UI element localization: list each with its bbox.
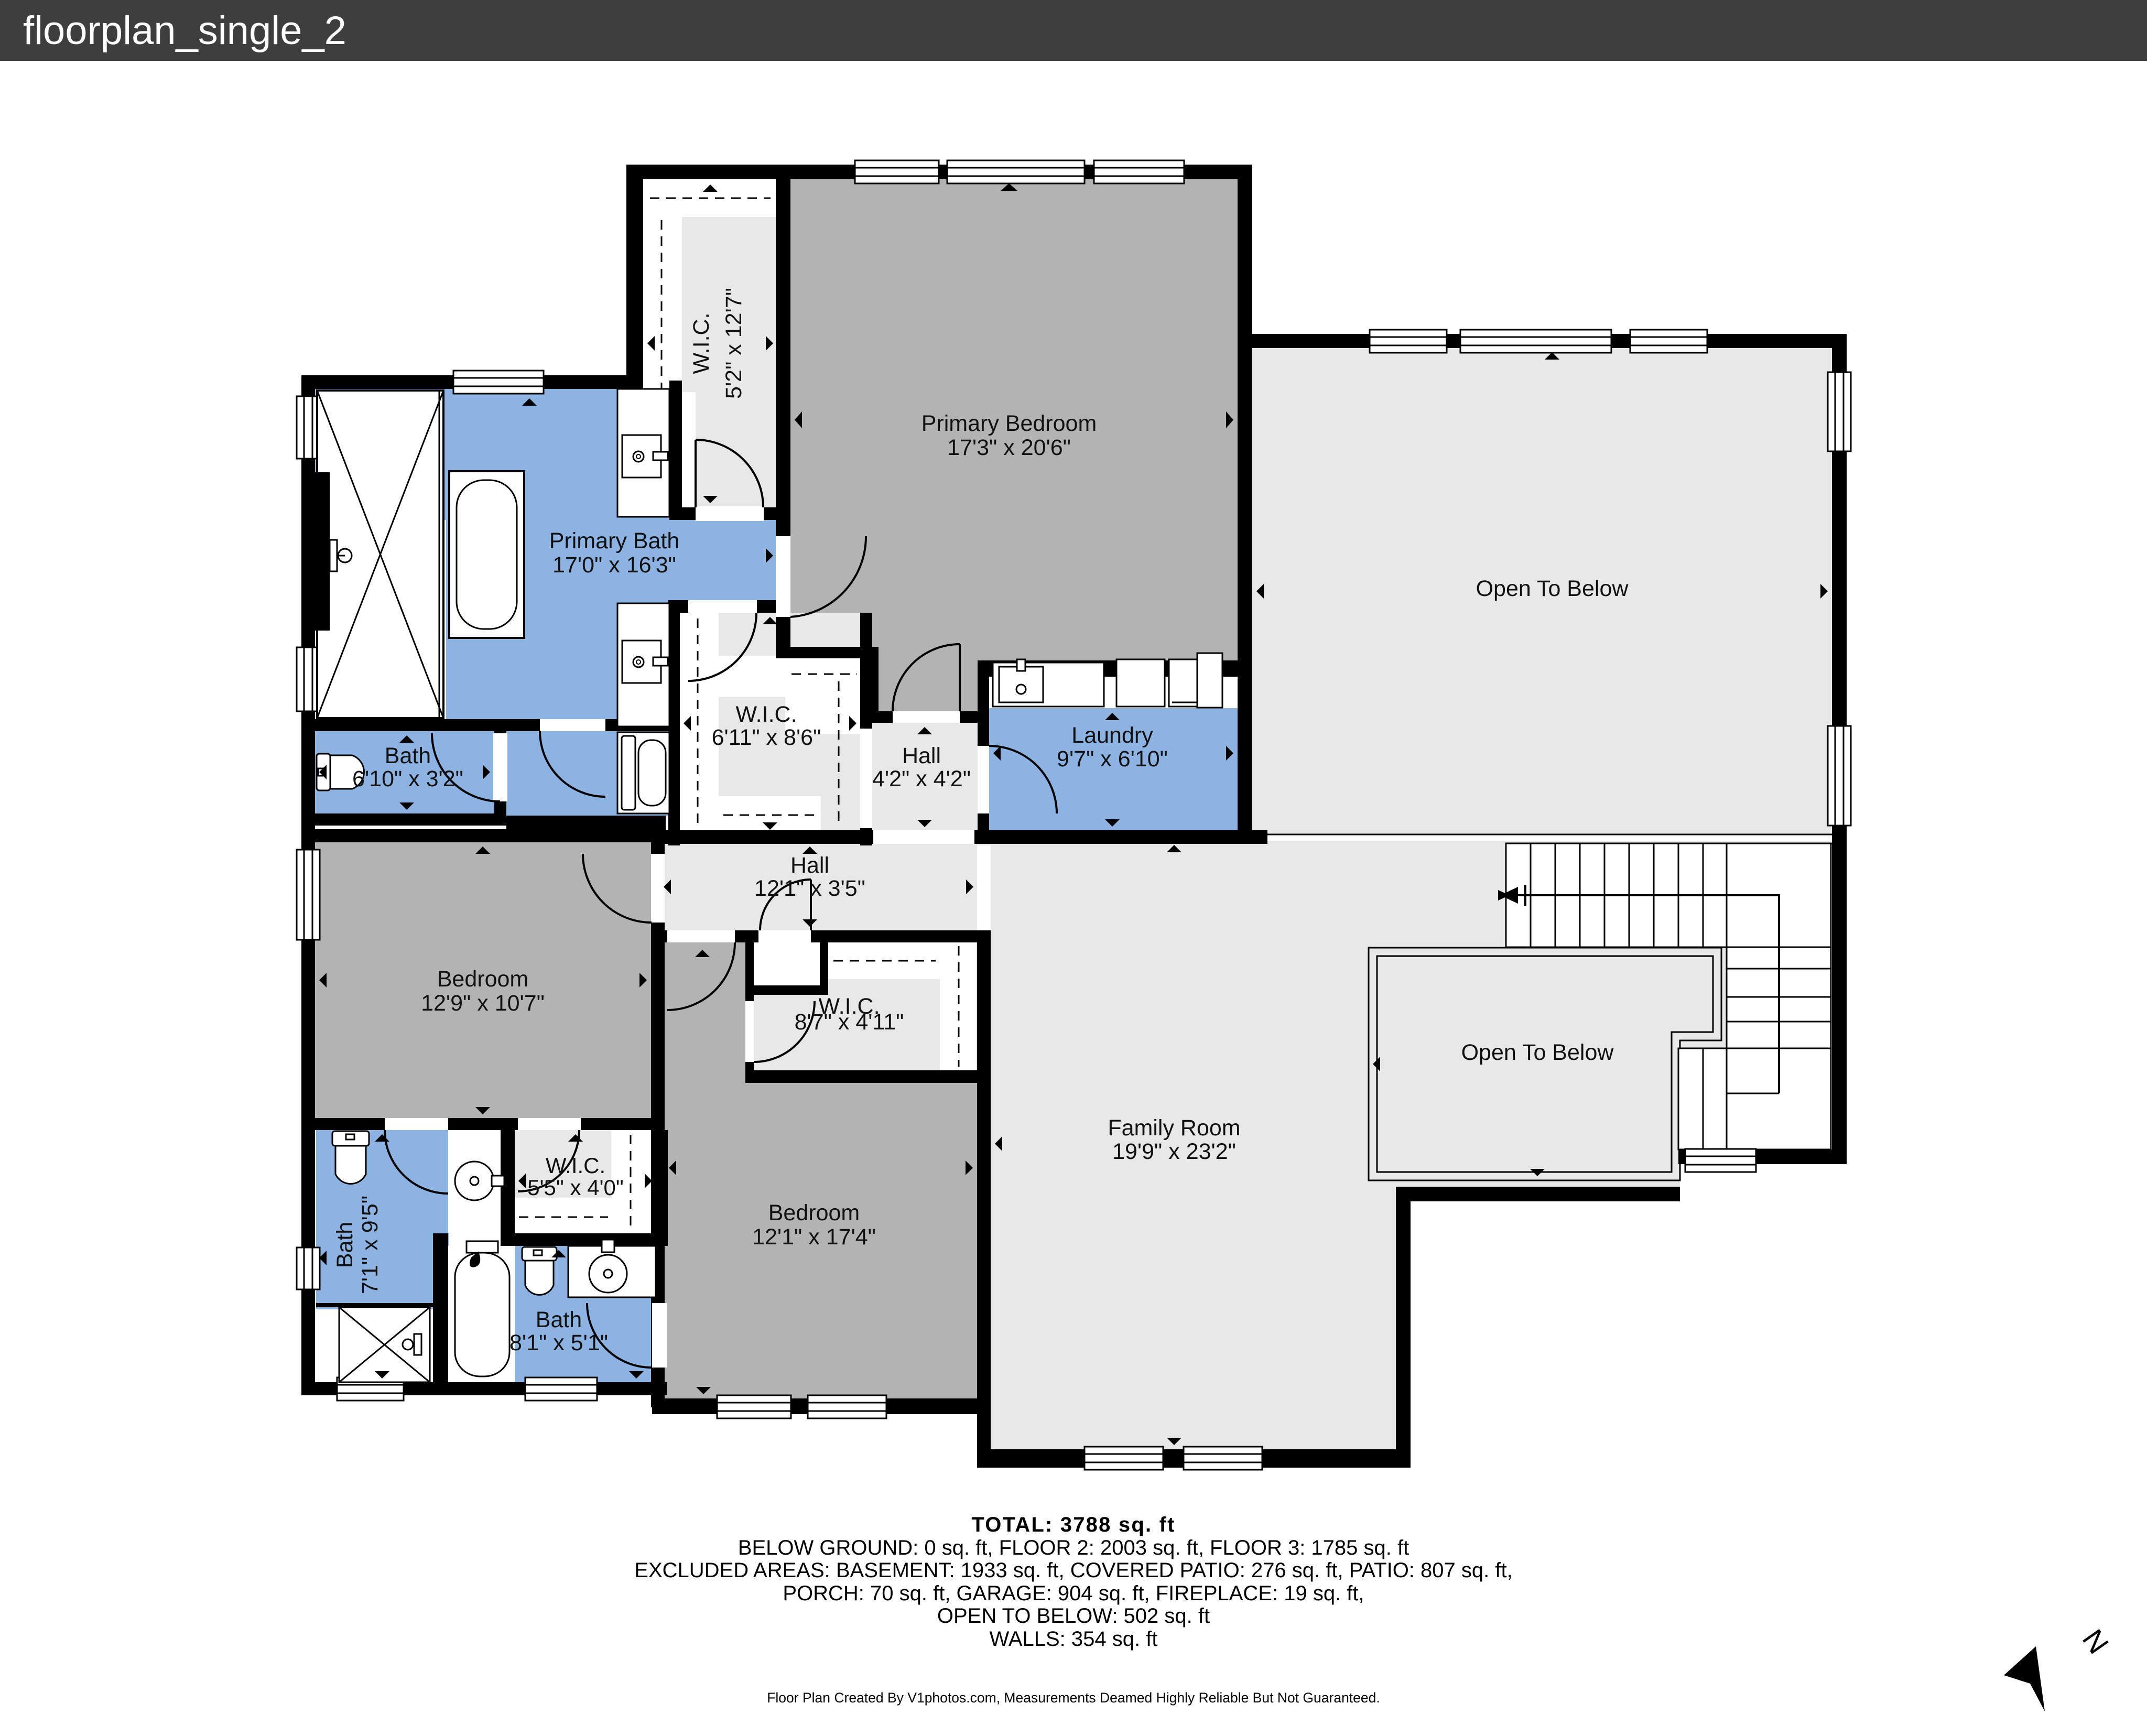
- svg-text:6'10" x 3'2": 6'10" x 3'2": [352, 766, 463, 791]
- svg-text:Hall: Hall: [902, 743, 941, 768]
- svg-text:W.I.C.: W.I.C.: [546, 1153, 605, 1178]
- svg-text:8'7" x 4'11": 8'7" x 4'11": [795, 1010, 904, 1035]
- svg-text:Primary Bath: Primary Bath: [549, 528, 680, 554]
- svg-text:6'11" x 8'6": 6'11" x 8'6": [712, 725, 821, 750]
- svg-text:Family Room: Family Room: [1108, 1115, 1240, 1141]
- svg-text:Laundry: Laundry: [1071, 723, 1153, 748]
- svg-text:Bath: Bath: [385, 743, 431, 768]
- svg-text:Bedroom: Bedroom: [768, 1200, 860, 1225]
- svg-text:Hall: Hall: [790, 853, 829, 878]
- svg-text:5'2" x 12'7": 5'2" x 12'7": [721, 288, 746, 399]
- svg-text:12'9" x 10'7": 12'9" x 10'7": [421, 991, 545, 1016]
- svg-text:Primary Bedroom: Primary Bedroom: [921, 411, 1097, 436]
- svg-text:17'0" x 16'3": 17'0" x 16'3": [552, 552, 676, 578]
- svg-text:12'1" x 17'4": 12'1" x 17'4": [752, 1224, 876, 1250]
- svg-text:9'7" x 6'10": 9'7" x 6'10": [1057, 746, 1168, 772]
- svg-text:W.I.C.: W.I.C.: [689, 312, 714, 374]
- svg-text:Open To Below: Open To Below: [1461, 1040, 1614, 1065]
- svg-text:17'3" x 20'6": 17'3" x 20'6": [947, 435, 1071, 460]
- svg-text:Bath: Bath: [332, 1222, 357, 1268]
- svg-text:Bath: Bath: [536, 1307, 582, 1332]
- svg-text:7'1" x 9'5": 7'1" x 9'5": [357, 1196, 383, 1294]
- svg-text:19'9" x 23'2": 19'9" x 23'2": [1112, 1139, 1236, 1164]
- svg-text:Bedroom: Bedroom: [437, 967, 528, 992]
- svg-text:8'1" x 5'1": 8'1" x 5'1": [509, 1330, 608, 1355]
- svg-text:4'2" x 4'2": 4'2" x 4'2": [872, 766, 971, 791]
- svg-text:Open To Below: Open To Below: [1476, 576, 1629, 601]
- svg-text:W.I.C.: W.I.C.: [735, 702, 797, 727]
- svg-text:5'5" x 4'0": 5'5" x 4'0": [527, 1175, 624, 1200]
- svg-text:12'1" x 3'5": 12'1" x 3'5": [754, 876, 865, 901]
